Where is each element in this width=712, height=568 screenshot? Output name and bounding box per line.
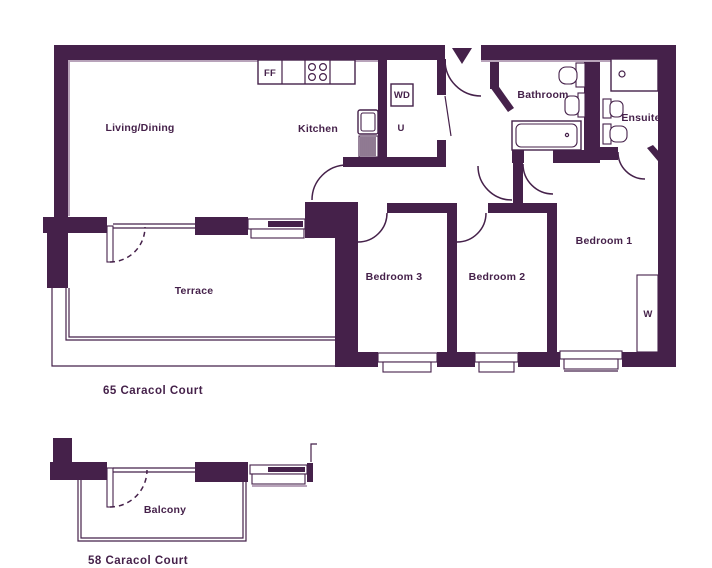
unit-58	[50, 438, 317, 541]
wall-bath-corner	[512, 150, 524, 163]
wall-stub	[53, 438, 72, 463]
wall-bathroom-left	[490, 59, 499, 89]
label-living: Living/Dining	[105, 122, 174, 134]
terrace-door-arc	[110, 227, 145, 262]
caption-unit-65: 65 Caracol Court	[103, 385, 203, 397]
bedroom1-window-sill	[564, 359, 618, 369]
bedroom3-window-sill	[383, 362, 431, 372]
toilet-bowl	[559, 67, 577, 84]
terrace-line-outer	[52, 288, 346, 366]
wall-bedroom2-left	[447, 203, 457, 352]
bedroom2-door-arc	[457, 213, 486, 242]
wall-left-band	[50, 462, 107, 480]
entrance-door-arc	[445, 60, 481, 96]
wall-living-bottom-mid	[195, 217, 248, 235]
kitchen-sink-basin	[361, 113, 375, 131]
label-kitchen: Kitchen	[298, 123, 338, 135]
ensuite-toilet-bowl	[610, 126, 627, 142]
label-ensuite: Ensuite	[621, 112, 660, 124]
neighbor-outline	[311, 444, 317, 462]
wall-end-cap	[307, 463, 313, 482]
bedroom1-window	[560, 351, 622, 359]
bedroom2-window	[475, 353, 518, 362]
bedroom3-window	[378, 353, 437, 362]
wall-bottom-seg2	[437, 352, 475, 367]
balcony-door-leaf	[107, 468, 113, 507]
lower-window-sill	[252, 474, 305, 484]
label-ff: FF	[264, 68, 276, 79]
wall-kitchen-divider	[378, 59, 387, 158]
wall-left-lower	[47, 233, 68, 288]
wall-bottom-seg4	[622, 352, 676, 367]
living-window-bar	[268, 221, 303, 227]
label-bedroom3: Bedroom 3	[366, 271, 423, 283]
label-bedroom2: Bedroom 2	[469, 271, 526, 283]
wall-top-left	[54, 45, 445, 60]
bathroom-door-arc	[478, 166, 512, 200]
terrace-boundary	[52, 288, 346, 366]
wall-bedroom1-left	[547, 203, 557, 352]
bathroom-fixtures	[512, 63, 585, 150]
label-bedroom1: Bedroom 1	[576, 235, 633, 247]
wall-left	[54, 45, 68, 217]
wall-living-bottom-left	[43, 217, 107, 233]
wall-hall-corridor	[513, 163, 523, 203]
ensuite-fixtures	[603, 59, 658, 144]
wall-mid-block	[195, 462, 248, 482]
wall-bottom-seg1	[335, 352, 378, 367]
wall-ensuite-bottom	[600, 147, 618, 160]
bedroom3-door-arc	[358, 213, 387, 242]
label-wardrobe: W	[643, 309, 652, 320]
wall-right	[658, 45, 676, 352]
entrance-arrow-icon	[452, 48, 472, 64]
label-wd: WD	[394, 90, 410, 101]
living-window-sill	[251, 229, 304, 238]
wall-kitchen-bottom	[343, 157, 446, 167]
living-door-arc	[312, 165, 347, 200]
ensuite-door-arc	[618, 152, 645, 179]
terrace-door-leaf	[107, 226, 113, 262]
wall-terrace-bedroom3	[335, 212, 358, 352]
floor-plan-page: Living/Dining Kitchen FF WD U Bathroom E…	[0, 0, 712, 568]
shower-tray	[611, 59, 658, 91]
label-terrace: Terrace	[175, 285, 214, 297]
bedroom1-door-arc	[523, 164, 553, 194]
bedroom2-window-sill	[479, 362, 514, 372]
utility-door-leaf	[445, 96, 451, 136]
caption-unit-58: 58 Caracol Court	[88, 555, 188, 567]
floor-plan-canvas: Living/Dining Kitchen FF WD U Bathroom E…	[0, 0, 712, 568]
wall-bedroom2-top	[488, 203, 547, 213]
label-u: U	[397, 123, 404, 134]
kitchen-fixtures	[258, 60, 413, 157]
label-bathroom: Bathroom	[517, 89, 568, 101]
bathtub-inner	[516, 124, 577, 147]
bathroom-door-leaf	[490, 84, 514, 112]
wall-bathroom-right	[584, 59, 600, 163]
wall-hall-bottom	[305, 202, 358, 212]
wall-bottom-seg3	[518, 352, 560, 367]
lower-window-bar	[268, 467, 305, 472]
wall-utility-right-lower	[437, 140, 446, 157]
balcony-door-arc	[110, 470, 147, 507]
label-balcony: Balcony	[144, 504, 186, 516]
wall-bedroom3-top	[387, 203, 447, 213]
wall-top-right	[481, 45, 660, 60]
appliance-striped	[359, 136, 378, 157]
